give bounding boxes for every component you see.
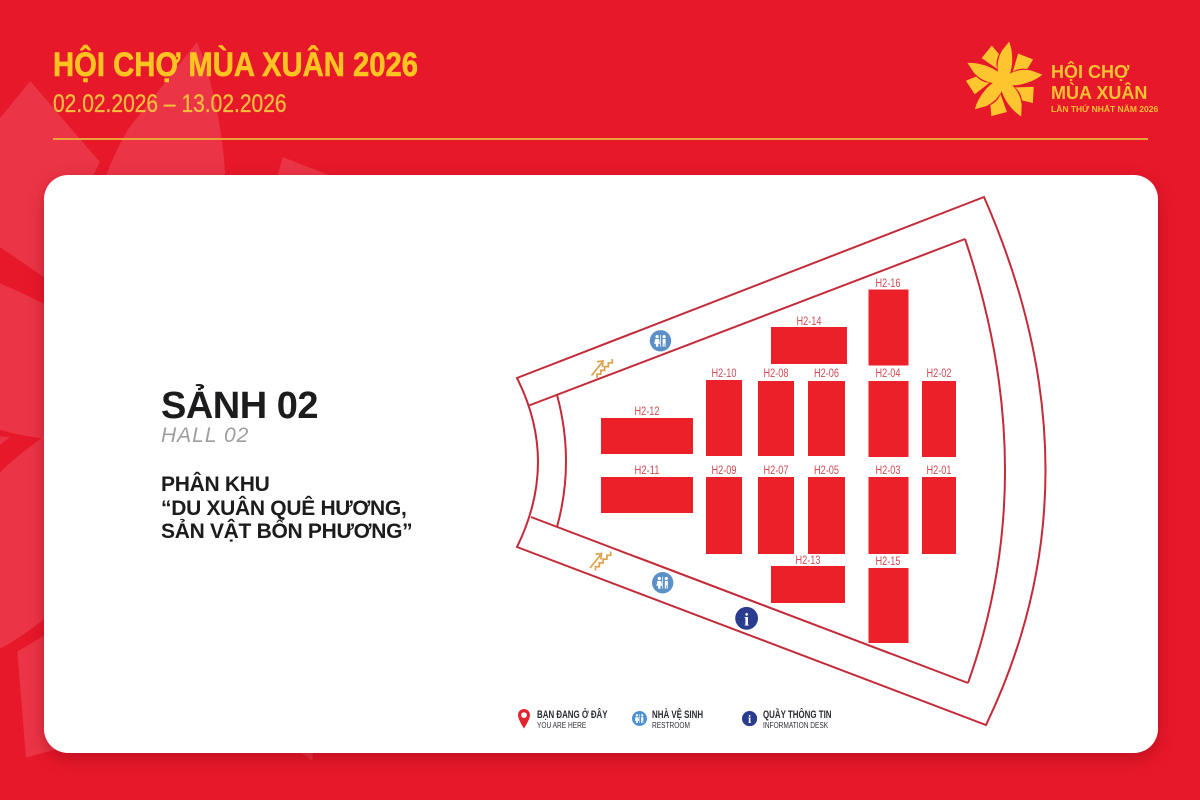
svg-text:H2-11: H2-11 xyxy=(635,465,660,477)
svg-text:i: i xyxy=(744,610,749,630)
svg-text:H2-16: H2-16 xyxy=(876,278,901,290)
svg-text:H2-07: H2-07 xyxy=(764,465,789,477)
svg-text:H2-14: H2-14 xyxy=(797,316,822,328)
svg-text:H2-08: H2-08 xyxy=(764,368,789,380)
svg-text:H2-10: H2-10 xyxy=(712,368,737,380)
svg-text:H2-03: H2-03 xyxy=(876,465,901,477)
svg-text:H2-02: H2-02 xyxy=(927,368,952,380)
svg-text:H2-09: H2-09 xyxy=(712,465,737,477)
svg-text:H2-04: H2-04 xyxy=(876,368,901,380)
svg-text:H2-06: H2-06 xyxy=(814,368,839,380)
svg-text:H2-01: H2-01 xyxy=(927,465,952,477)
svg-text:H2-13: H2-13 xyxy=(796,555,821,567)
svg-text:H2-12: H2-12 xyxy=(635,406,660,418)
svg-text:H2-15: H2-15 xyxy=(876,556,901,568)
svg-text:H2-05: H2-05 xyxy=(814,465,839,477)
